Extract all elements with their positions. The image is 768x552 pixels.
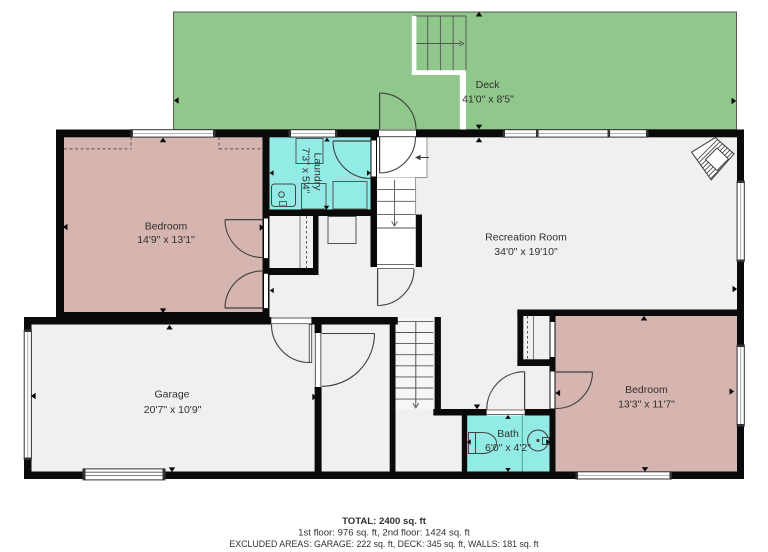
svg-text:6'0" x 4'2": 6'0" x 4'2" xyxy=(485,442,531,454)
svg-text:14'9" x 13'1": 14'9" x 13'1" xyxy=(137,234,195,246)
svg-text:13'3" x 11'7": 13'3" x 11'7" xyxy=(618,399,675,411)
svg-text:EXCLUDED AREAS: GARAGE: 222 sq: EXCLUDED AREAS: GARAGE: 222 sq. ft, DECK… xyxy=(229,539,539,549)
svg-text:Bedroom: Bedroom xyxy=(145,220,188,232)
svg-text:1st floor: 976 sq. ft, 2nd flo: 1st floor: 976 sq. ft, 2nd floor: 1424 s… xyxy=(298,528,470,539)
svg-text:Recreation Room: Recreation Room xyxy=(485,231,567,243)
svg-text:Laundry: Laundry xyxy=(312,153,324,192)
svg-text:TOTAL: 2400 sq. ft: TOTAL: 2400 sq. ft xyxy=(342,516,427,527)
svg-text:34'0" x 19'10": 34'0" x 19'10" xyxy=(494,246,558,258)
svg-text:7'3" x 5'4": 7'3" x 5'4" xyxy=(300,148,312,194)
svg-text:20'7" x 10'9": 20'7" x 10'9" xyxy=(144,404,202,416)
svg-text:41'0" x 8'5": 41'0" x 8'5" xyxy=(462,94,514,106)
svg-text:Bedroom: Bedroom xyxy=(625,384,668,396)
svg-text:Bath: Bath xyxy=(497,428,519,440)
svg-text:Garage: Garage xyxy=(154,389,189,401)
svg-text:Deck: Deck xyxy=(476,79,501,91)
